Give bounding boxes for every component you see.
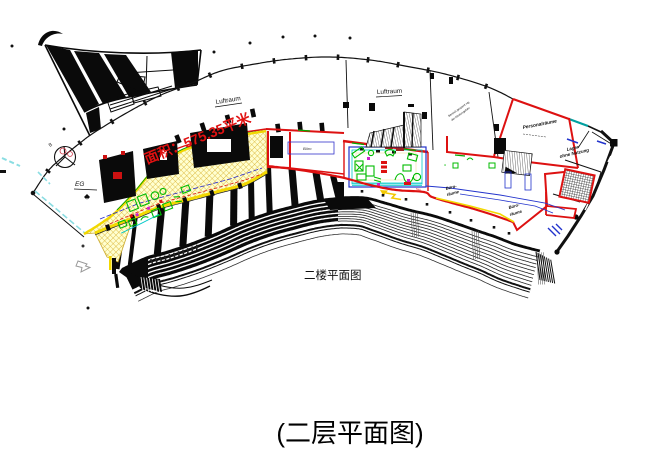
svg-text:Luftraum: Luftraum (377, 88, 403, 96)
svg-text:5xx: 5xx (416, 187, 421, 191)
svg-text:二楼平面图: 二楼平面图 (304, 268, 362, 282)
svg-text:EG: EG (75, 181, 84, 188)
svg-text:Büro: Büro (303, 146, 312, 151)
svg-text:(二层平面图): (二层平面图) (276, 418, 423, 448)
